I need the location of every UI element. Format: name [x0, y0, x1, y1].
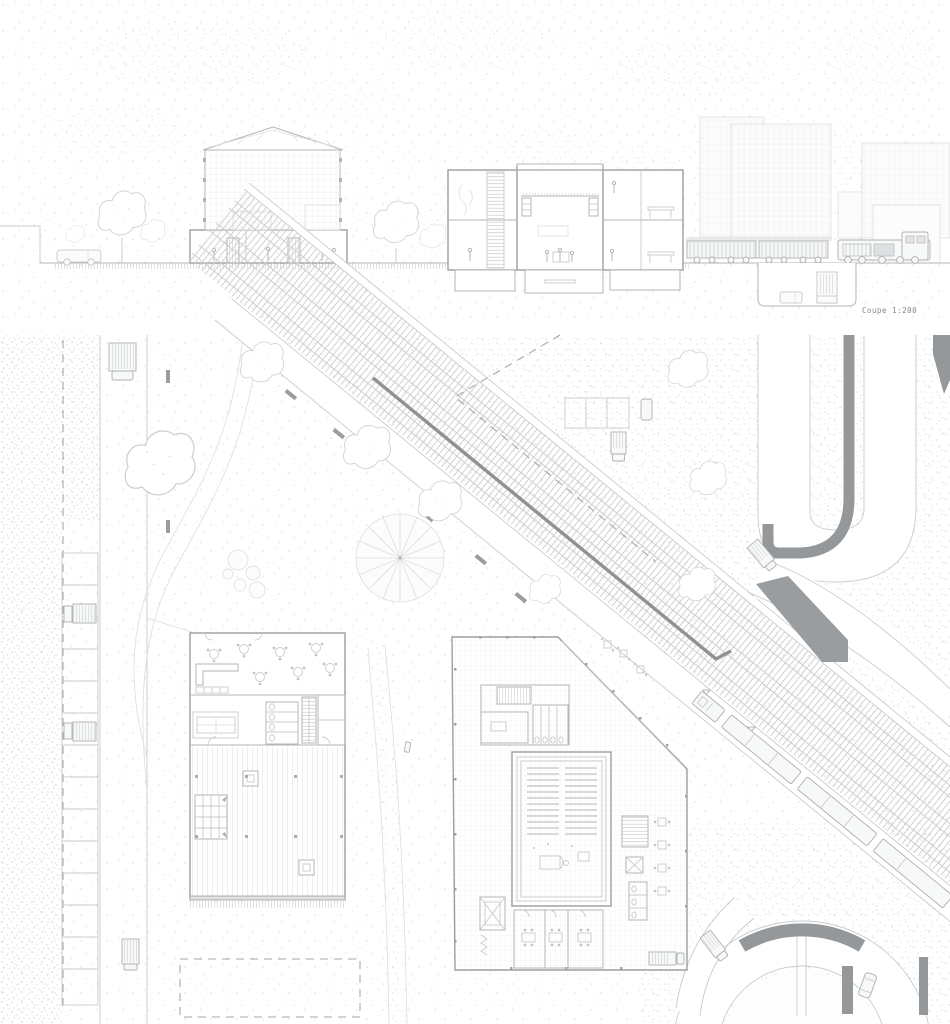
truck-on-road-top	[109, 343, 136, 380]
south-deck-edge	[190, 896, 345, 900]
truck-on-road-bottom	[122, 939, 139, 970]
section-scale-label: Coupe 1:200	[862, 306, 917, 315]
architectural-drawing: Coupe 1:200	[0, 0, 950, 1024]
underground-passage	[758, 263, 856, 306]
parked-truck	[64, 722, 96, 741]
car-parked	[641, 399, 652, 420]
gravel-strip-left	[0, 335, 62, 1024]
left-building-plan	[190, 633, 345, 908]
truck-parked	[611, 432, 626, 461]
drawing-board: Coupe 1:200	[0, 0, 950, 1024]
dock-truck	[649, 952, 684, 965]
section-view: Coupe 1:200	[0, 0, 950, 320]
skylight	[299, 860, 314, 875]
stage-lift-grid	[195, 795, 227, 839]
parked-truck	[64, 604, 96, 623]
scooter	[404, 742, 411, 753]
stairs	[302, 697, 316, 743]
skylight	[243, 771, 258, 786]
section-cultural-building	[448, 164, 683, 293]
radial-canopy	[356, 514, 444, 602]
